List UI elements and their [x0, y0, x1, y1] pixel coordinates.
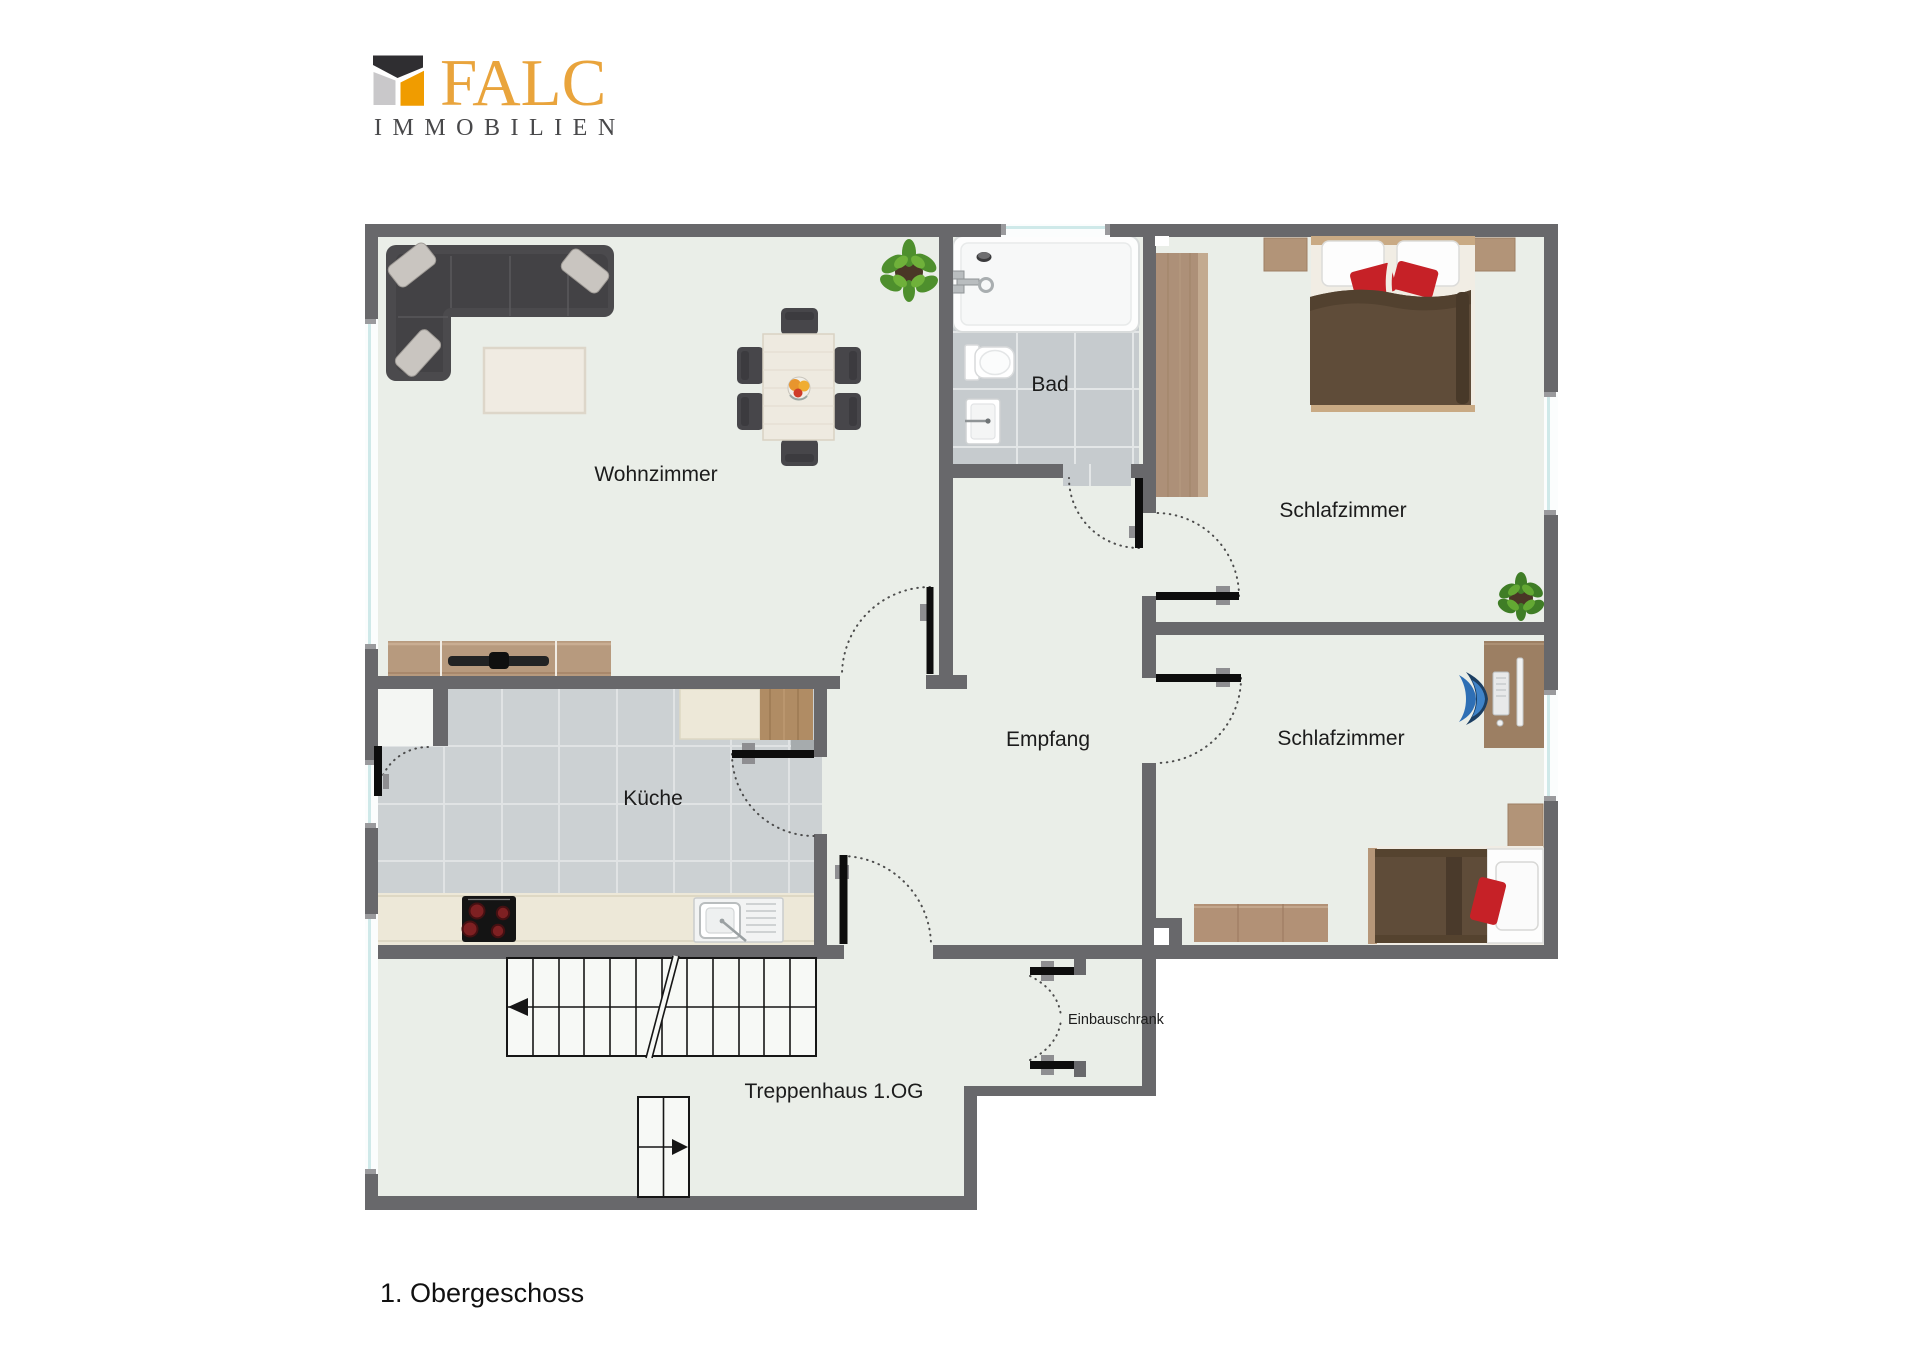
svg-text:1. Obergeschoss: 1. Obergeschoss: [380, 1278, 584, 1308]
svg-text:Treppenhaus 1.OG: Treppenhaus 1.OG: [745, 1080, 924, 1103]
svg-text:Wohnzimmer: Wohnzimmer: [594, 463, 717, 486]
svg-text:IMMOBILIEN: IMMOBILIEN: [374, 115, 626, 141]
svg-text:Bad: Bad: [1031, 373, 1068, 396]
svg-text:Schlafzimmer: Schlafzimmer: [1279, 499, 1406, 522]
svg-text:Empfang: Empfang: [1006, 728, 1090, 751]
svg-text:Schlafzimmer: Schlafzimmer: [1277, 727, 1404, 750]
svg-text:Küche: Küche: [623, 787, 683, 810]
svg-text:FALC: FALC: [440, 46, 606, 120]
svg-text:Einbauschrank: Einbauschrank: [1068, 1012, 1165, 1028]
